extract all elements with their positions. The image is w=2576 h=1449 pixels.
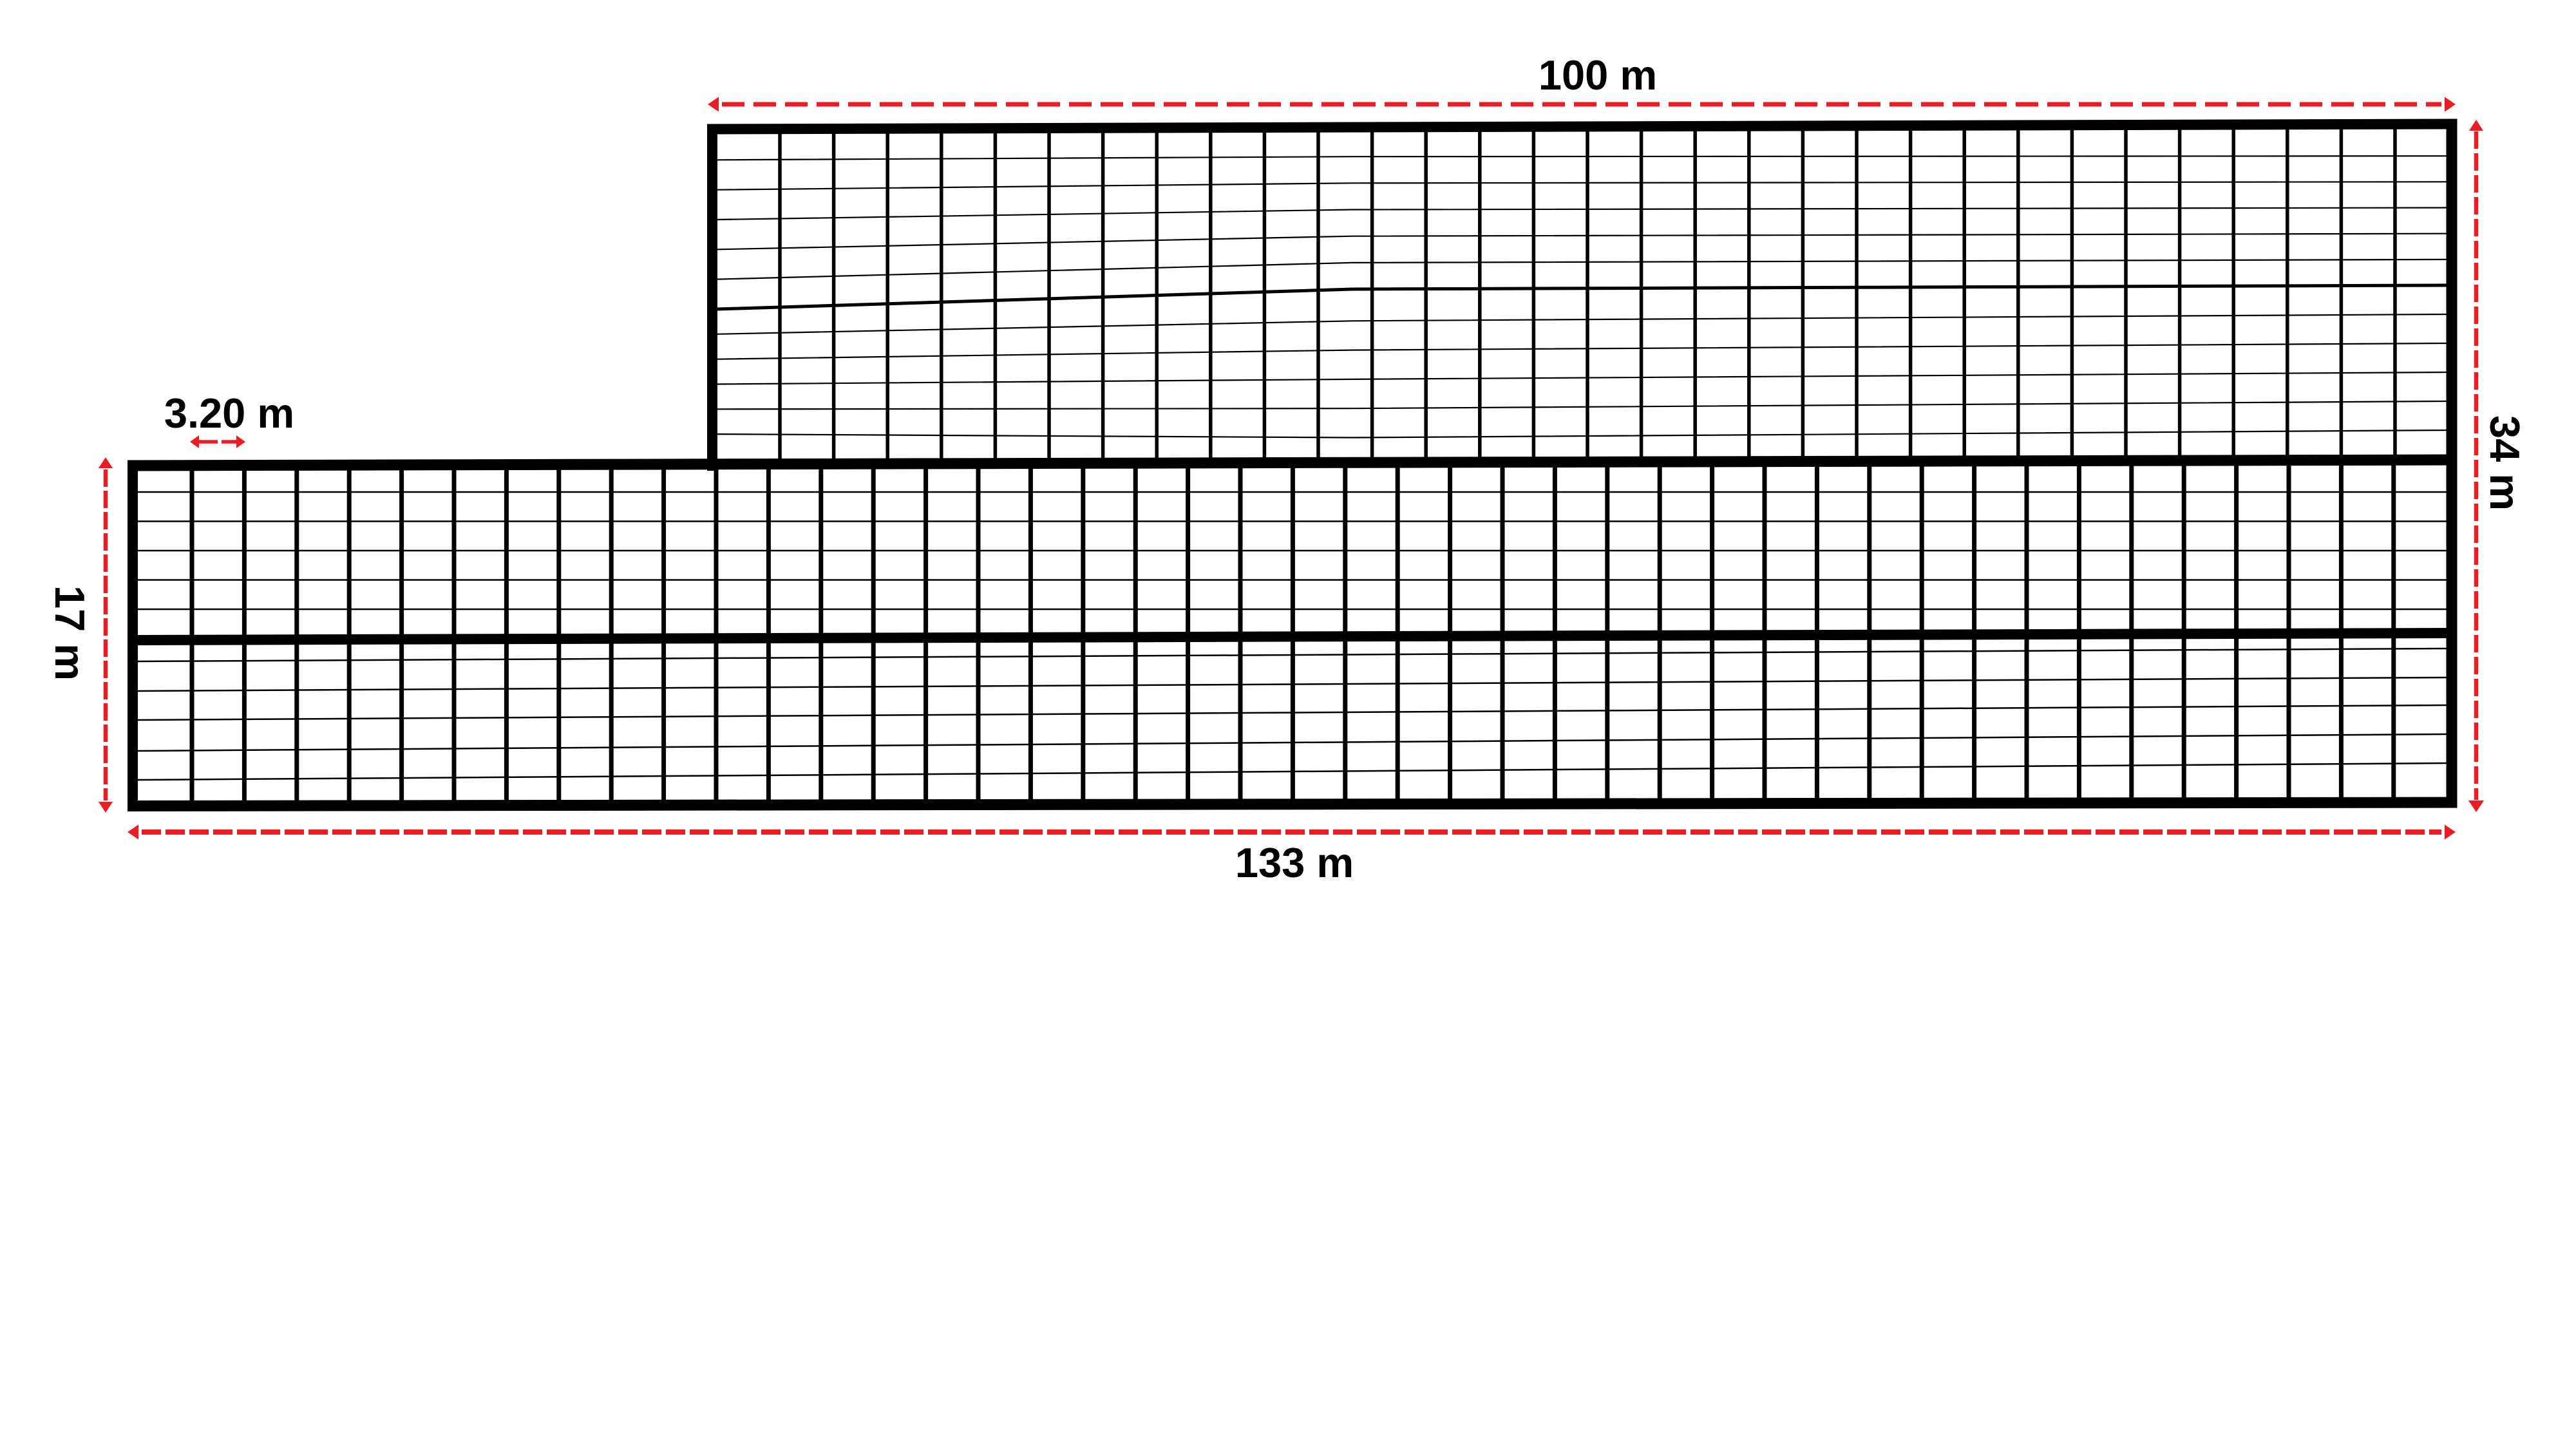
- svg-text:17 m: 17 m: [46, 585, 93, 681]
- svg-text:100 m: 100 m: [1539, 52, 1657, 99]
- svg-text:3.20 m: 3.20 m: [164, 390, 294, 437]
- svg-text:133 m: 133 m: [1235, 839, 1354, 886]
- svg-text:34 m: 34 m: [2481, 415, 2528, 511]
